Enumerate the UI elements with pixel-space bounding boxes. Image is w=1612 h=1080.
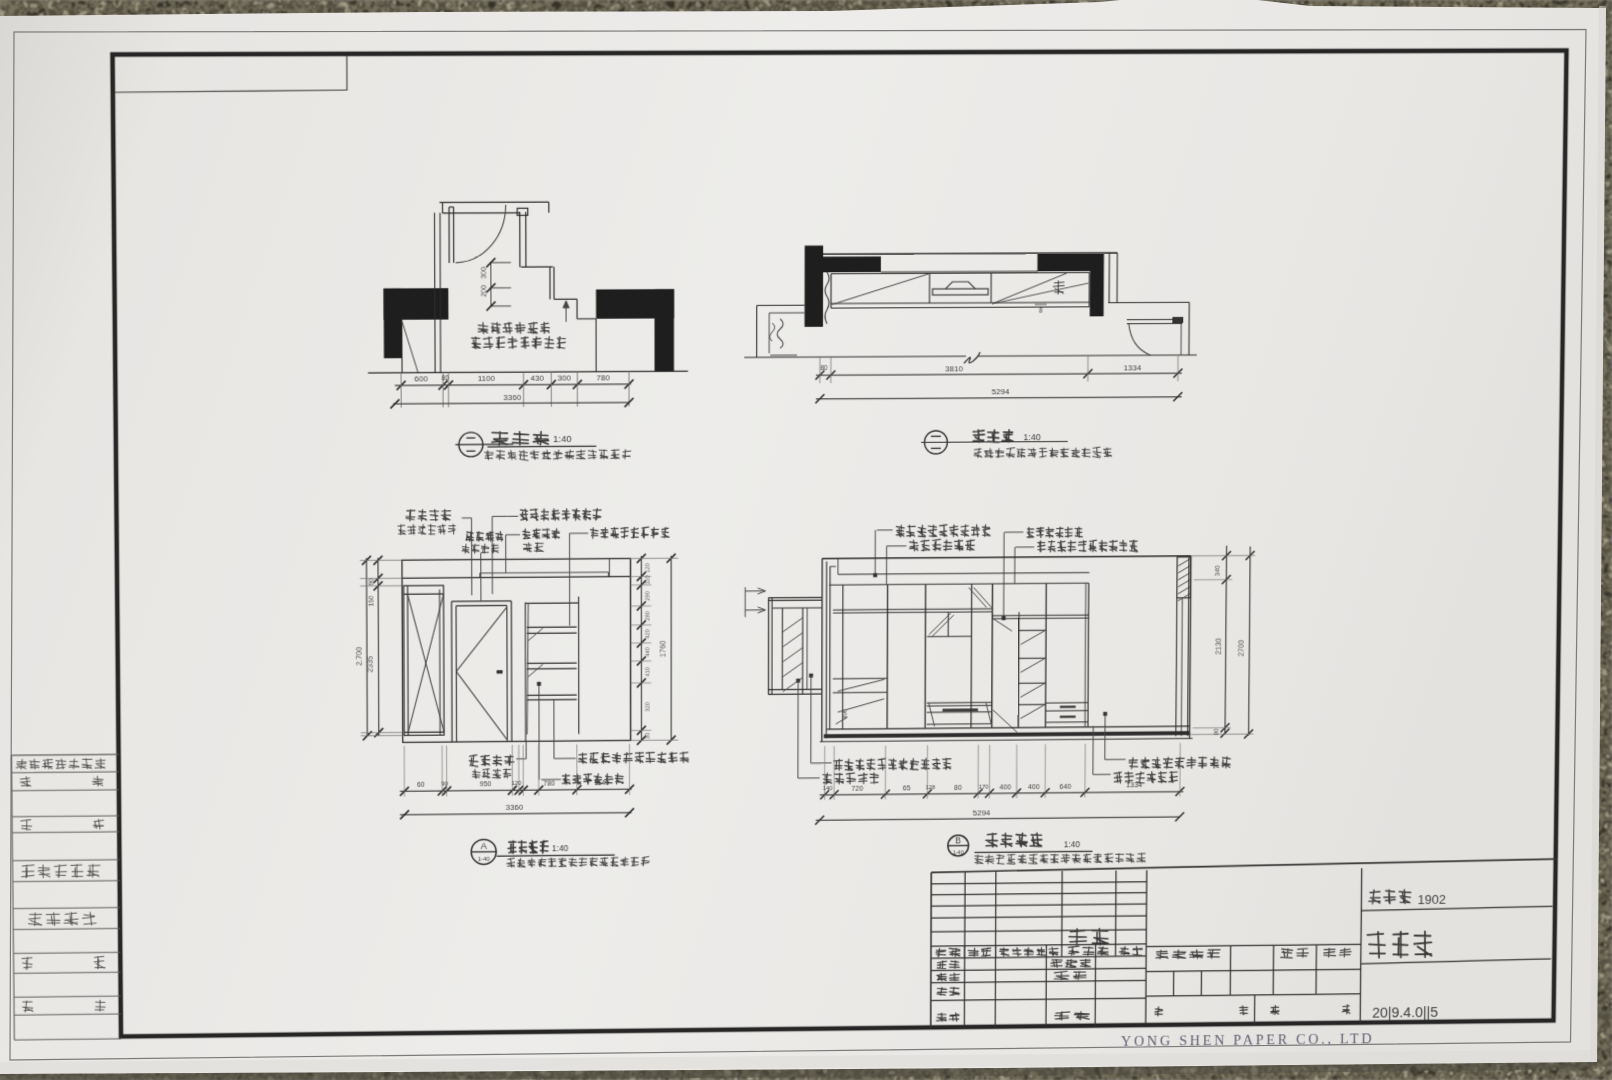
svg-text:300: 300	[558, 374, 572, 383]
svg-text:1334: 1334	[1124, 363, 1142, 372]
svg-text:950: 950	[480, 781, 492, 789]
svg-text:1140: 1140	[594, 780, 609, 788]
svg-text:1:40: 1:40	[553, 434, 571, 445]
svg-text:65: 65	[903, 784, 911, 792]
svg-text:1-40: 1-40	[953, 850, 964, 856]
svg-text:1760: 1760	[658, 641, 667, 658]
svg-text:1:40: 1:40	[552, 843, 569, 853]
svg-text:80: 80	[442, 375, 450, 382]
svg-text:5294: 5294	[973, 808, 991, 817]
svg-text:128: 128	[925, 784, 935, 791]
svg-text:1902: 1902	[1418, 892, 1446, 907]
svg-text:3360: 3360	[506, 803, 524, 812]
svg-text:60: 60	[417, 781, 425, 789]
svg-text:3360: 3360	[503, 393, 521, 402]
svg-text:3810: 3810	[945, 364, 963, 373]
svg-text:430: 430	[531, 374, 545, 383]
svg-text:80: 80	[1213, 728, 1220, 735]
svg-text:200: 200	[480, 285, 488, 297]
svg-text:120: 120	[645, 562, 651, 572]
svg-text:320: 320	[645, 701, 651, 711]
svg-text:80: 80	[954, 784, 962, 792]
svg-text:2335: 2335	[366, 656, 375, 673]
svg-text:780: 780	[596, 374, 610, 383]
svg-text:2700: 2700	[1237, 640, 1246, 657]
svg-text:YONG SHEN PAPER CO., LTD: YONG SHEN PAPER CO., LTD	[1121, 1032, 1374, 1050]
svg-text:120: 120	[511, 780, 522, 787]
svg-text:640: 640	[1060, 783, 1072, 791]
svg-text:1-40: 1-40	[478, 856, 491, 863]
svg-text:340: 340	[1215, 565, 1222, 576]
svg-text:780: 780	[543, 780, 555, 788]
svg-text:A: A	[481, 841, 488, 852]
svg-text:110: 110	[645, 575, 651, 585]
svg-text:1334: 1334	[1126, 781, 1143, 790]
svg-text:1:40: 1:40	[1023, 432, 1040, 442]
svg-text:150: 150	[368, 595, 375, 606]
svg-text:80: 80	[368, 578, 375, 586]
svg-text:400: 400	[1000, 783, 1012, 791]
svg-text:B: B	[955, 836, 961, 846]
svg-text:410: 410	[645, 666, 651, 676]
svg-text:80: 80	[820, 365, 828, 372]
svg-text:400: 400	[1028, 783, 1040, 791]
svg-text:290: 290	[645, 590, 651, 600]
svg-text:440: 440	[645, 646, 651, 656]
svg-text:1:40: 1:40	[1064, 839, 1080, 849]
svg-text:1100: 1100	[478, 374, 496, 383]
svg-text:30: 30	[645, 732, 651, 739]
svg-text:8: 8	[1039, 308, 1043, 315]
svg-text:20|9.4.0||5: 20|9.4.0||5	[1372, 1005, 1438, 1021]
svg-text:600: 600	[414, 375, 428, 384]
svg-text:300: 300	[480, 267, 488, 279]
svg-text:140: 140	[823, 785, 833, 792]
svg-text:2130: 2130	[1214, 638, 1223, 655]
svg-text:2.700: 2.700	[355, 647, 364, 666]
svg-text:420: 420	[645, 628, 651, 638]
svg-text:90: 90	[441, 781, 448, 788]
svg-text:720: 720	[852, 785, 864, 793]
svg-text:5294: 5294	[992, 388, 1010, 397]
svg-text:280: 280	[645, 610, 651, 620]
svg-text:400: 400	[842, 709, 849, 720]
svg-text:170: 170	[979, 784, 989, 791]
